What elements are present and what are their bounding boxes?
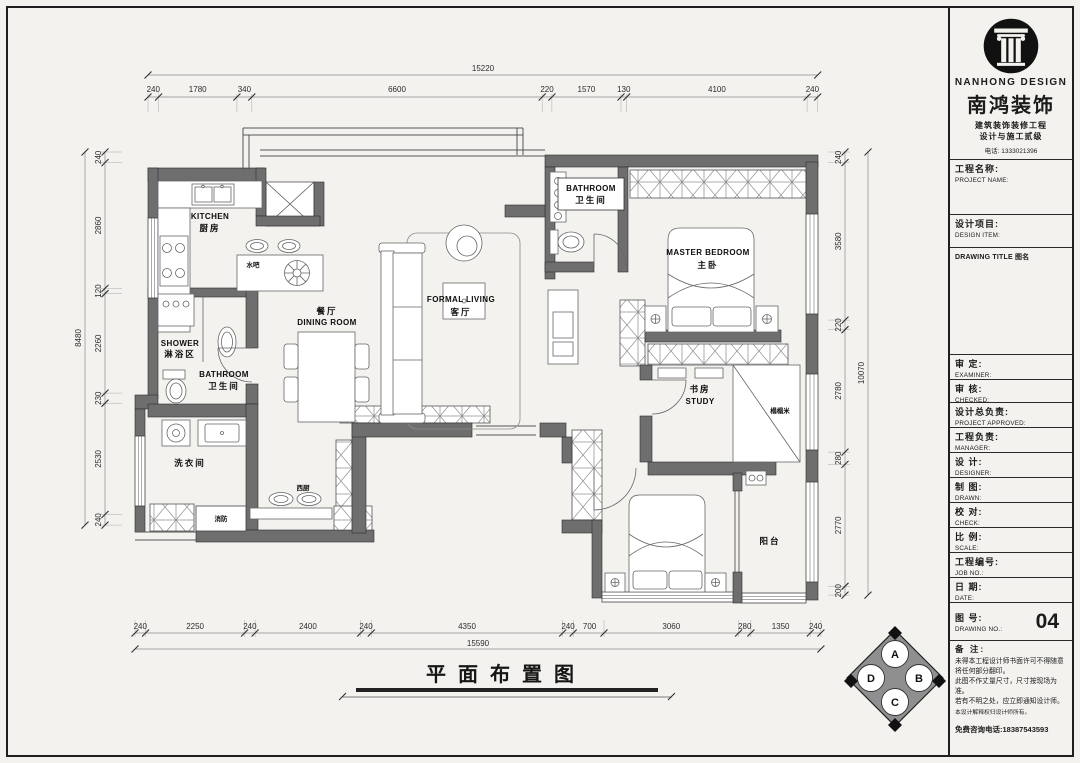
svg-text:240: 240 xyxy=(359,622,373,631)
field-designer: 设 计: DESIGNER: xyxy=(950,453,1072,478)
note-line: 未得本工程设计师书面许可不得随意将任何部分翻印。 xyxy=(955,657,1067,677)
logo-text-en: NANHONG DESIGN xyxy=(955,77,1067,88)
column-logo-icon xyxy=(983,18,1039,74)
svg-text:平面布置图: 平面布置图 xyxy=(426,662,586,686)
svg-text:220: 220 xyxy=(834,318,843,332)
label-master-bath-zh: 卫生间 xyxy=(575,195,607,205)
svg-text:2260: 2260 xyxy=(94,334,103,352)
company-logo-block: NANHONG DESIGN 南鸿装饰 建筑装饰装修工程 设计与施工贰级 电话:… xyxy=(950,8,1072,160)
compass-d: D xyxy=(867,673,875,685)
field-drawn: 制 图: DRAWN: xyxy=(950,478,1072,503)
balcony-fixtures xyxy=(746,471,766,485)
rug xyxy=(407,233,520,429)
compass-a: A xyxy=(891,649,899,661)
label-bath2-zh: 卫生间 xyxy=(208,381,240,391)
sofa xyxy=(381,251,394,415)
label-bar: 水吧 xyxy=(247,260,261,269)
svg-text:120: 120 xyxy=(94,284,103,298)
svg-text:2400: 2400 xyxy=(299,622,317,631)
label-living-en: FORMAL LIVING xyxy=(427,295,495,304)
field-job-no: 工程编号: JOB NO.: xyxy=(950,553,1072,578)
label-dining-en: DINING ROOM xyxy=(297,318,357,327)
door-study xyxy=(652,380,686,414)
logo-text-zh: 南鸿装饰 xyxy=(967,89,1055,118)
svg-text:240: 240 xyxy=(243,622,257,631)
svg-text:200: 200 xyxy=(834,583,843,597)
dim-right-total: 10070 xyxy=(857,361,866,384)
svg-text:2860: 2860 xyxy=(94,216,103,234)
svg-text:2770: 2770 xyxy=(834,516,843,534)
hall-cabinet xyxy=(548,290,578,364)
svg-text:240: 240 xyxy=(147,85,161,94)
svg-text:240: 240 xyxy=(94,513,103,527)
drawing-number: 04 xyxy=(1036,610,1067,634)
field-manager: 工程负责: MANAGER: xyxy=(950,428,1072,453)
label-shower-en: SHOWER xyxy=(161,339,199,348)
svg-text:3580: 3580 xyxy=(834,232,843,250)
svg-text:2780: 2780 xyxy=(834,381,843,399)
laundry-fixtures xyxy=(162,420,246,446)
dim-top-total: 15220 xyxy=(472,64,495,73)
floor-plan: 15220 240 1780 340 6600 220 1570 130 410… xyxy=(0,0,950,763)
label-shower-zh: 淋浴区 xyxy=(164,349,196,359)
label-laundry: 洗衣间 xyxy=(174,458,206,468)
label-west-kitchen: 西厨 xyxy=(297,483,311,492)
field-examiner: 审 定: EXAMINER: xyxy=(950,355,1072,380)
field-date: 日 期: DATE: xyxy=(950,578,1072,603)
bay-window xyxy=(243,128,545,170)
label-kitchen-en: KITCHEN xyxy=(191,212,229,221)
label-kitchen-zh: 厨房 xyxy=(199,223,220,233)
field-design-item: 设计项目: DESIGN ITEM: xyxy=(950,215,1072,248)
svg-text:340: 340 xyxy=(238,85,252,94)
field-project-approved: 设计总负责: PROJECT APPROVED: xyxy=(950,403,1072,428)
svg-text:240: 240 xyxy=(834,150,843,164)
label-study-en: STUDY xyxy=(685,397,714,406)
svg-text:280: 280 xyxy=(834,451,843,465)
compass-c: C xyxy=(891,697,899,709)
notes-block: 备 注: 未得本工程设计师书面许可不得随意将任何部分翻印。 此图不作丈量尺寸，尺… xyxy=(950,641,1072,755)
drawing-sheet: 15220 240 1780 340 6600 220 1570 130 410… xyxy=(0,0,1080,763)
svg-text:700: 700 xyxy=(583,622,597,631)
field-scale: 比 例: SCALE: xyxy=(950,528,1072,553)
logo-phone: 电话: 1333021396 xyxy=(985,145,1038,155)
field-drawing-title: DRAWING TITLE 图名 xyxy=(950,248,1072,355)
label-balcony: 阳台 xyxy=(759,536,780,546)
svg-text:240: 240 xyxy=(94,150,103,164)
living-furniture xyxy=(379,225,520,429)
stove xyxy=(160,236,188,286)
svg-text:240: 240 xyxy=(809,622,823,631)
label-master-bath-en: BATHROOM xyxy=(566,184,616,193)
field-project-name: 工程名称: PROJECT NAME: xyxy=(950,160,1072,215)
label-study-zh: 书房 xyxy=(689,384,710,394)
elevation-compass: A B C D xyxy=(844,626,946,732)
field-drawing-no: 图 号: DRAWING NO.: 04 xyxy=(950,603,1072,641)
label-dining-zh: 餐厅 xyxy=(315,306,337,316)
dim-bottom-total: 15590 xyxy=(467,639,490,648)
logo-tagline2: 设计与施工贰级 xyxy=(980,131,1043,142)
svg-text:230: 230 xyxy=(94,391,103,405)
label-master-bedroom-en: MASTER BEDROOM xyxy=(666,248,749,257)
svg-text:2250: 2250 xyxy=(186,622,204,631)
label-tatami: 榻榻米 xyxy=(769,406,790,415)
label-fire: 消防 xyxy=(215,514,229,523)
svg-text:130: 130 xyxy=(617,85,631,94)
logo-tagline1: 建筑装饰装修工程 xyxy=(975,120,1047,131)
label-bath2-en: BATHROOM xyxy=(199,370,249,379)
svg-text:240: 240 xyxy=(561,622,575,631)
compass-b: B xyxy=(915,673,923,685)
svg-text:240: 240 xyxy=(806,85,820,94)
title-block: NANHONG DESIGN 南鸿装饰 建筑装饰装修工程 设计与施工贰级 电话:… xyxy=(948,8,1072,755)
bottom-strip xyxy=(196,493,332,532)
dim-left-total: 8480 xyxy=(74,329,83,347)
field-check: 校 对: CHECK: xyxy=(950,503,1072,528)
svg-text:4100: 4100 xyxy=(708,85,726,94)
label-living-zh: 客厅 xyxy=(449,307,471,317)
note-line: 此图不作丈量尺寸，尺寸按现场为准。 xyxy=(955,677,1067,697)
master-bath-label-box xyxy=(558,178,624,210)
note-line: 若有不明之处，应立即通知设计师。 xyxy=(955,697,1067,707)
field-checked: 审 核: CHECKED: xyxy=(950,380,1072,403)
svg-text:6600: 6600 xyxy=(388,85,406,94)
bedroom2-furniture xyxy=(594,468,726,592)
svg-text:1350: 1350 xyxy=(772,622,790,631)
hotline: 免费咨询电话:18387543593 xyxy=(955,725,1067,736)
svg-text:1780: 1780 xyxy=(189,85,207,94)
svg-text:220: 220 xyxy=(540,85,554,94)
svg-text:2530: 2530 xyxy=(94,449,103,467)
svg-text:1570: 1570 xyxy=(578,85,596,94)
label-master-bedroom-zh: 主卧 xyxy=(697,260,718,270)
plan-title: 平面布置图 xyxy=(339,662,675,700)
svg-text:280: 280 xyxy=(738,622,752,631)
svg-text:3060: 3060 xyxy=(662,622,680,631)
svg-text:240: 240 xyxy=(134,622,148,631)
master-bed xyxy=(645,228,778,332)
note-line: 本设计解释权归设计师所有。 xyxy=(955,709,1067,717)
svg-text:4350: 4350 xyxy=(458,622,476,631)
